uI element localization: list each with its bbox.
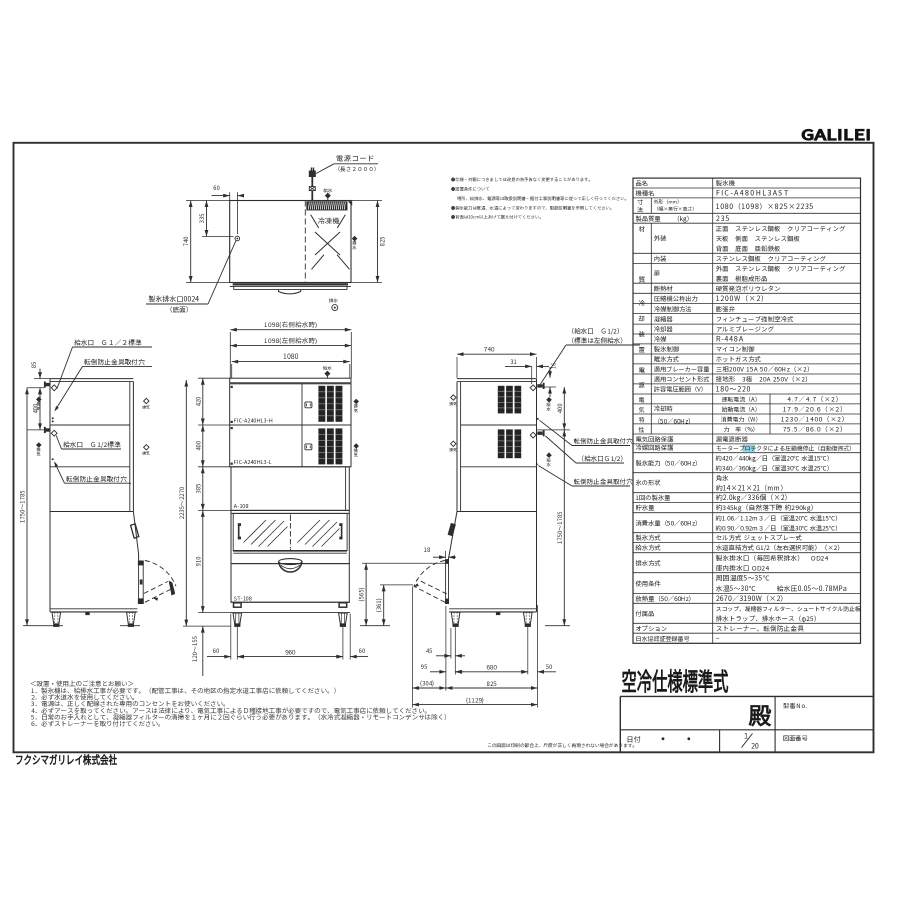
svg-text:力 率（%）: 力 率（%） — [724, 424, 759, 433]
svg-text:膨張弁: 膨張弁 — [715, 304, 736, 313]
svg-text:（給水口Ｇ1/2）: （給水口Ｇ1/2） — [578, 453, 627, 463]
svg-text:排水: 排水 — [328, 298, 338, 304]
svg-text:●製氷能力は室温、水温によって変わりますので、取扱説明書を参: ●製氷能力は室温、水温によって変わりますので、取扱説明書を参照してください。 — [451, 206, 614, 212]
svg-text:約14×21×21（mm）: 約14×21×21（mm） — [716, 483, 788, 493]
svg-text:ホットガス方式: ホットガス方式 — [716, 354, 761, 363]
svg-text:1230／1400（×2）: 1230／1400（×2） — [781, 414, 849, 423]
svg-text:電気回路保護: 電気回路保護 — [636, 434, 674, 443]
svg-text:（50／60Hz）: （50／60Hz） — [654, 417, 694, 426]
svg-text:製氷能力（50／60Hz）: 製氷能力（50／60Hz） — [636, 459, 702, 468]
svg-text:18: 18 — [424, 545, 431, 554]
svg-text:製氷機: 製氷機 — [716, 179, 736, 188]
svg-text:335: 335 — [197, 214, 206, 224]
svg-text:気: 気 — [354, 453, 358, 459]
svg-text:付属品: 付属品 — [636, 609, 655, 618]
svg-text:電: 電 — [639, 395, 645, 404]
svg-text:気: 気 — [639, 405, 646, 414]
svg-text:マイコン制御: マイコン制御 — [716, 345, 755, 354]
svg-text:●設置条件について: ●設置条件について — [451, 186, 490, 193]
svg-text:電: 電 — [639, 366, 646, 375]
svg-text:排水方式: 排水方式 — [636, 559, 661, 568]
svg-text:120～155: 120～155 — [190, 636, 199, 662]
svg-text:(565): (565) — [357, 587, 366, 601]
svg-text:約0.90／0.92m３／日（室温30℃ 水温25℃）: 約0.90／0.92m３／日（室温30℃ 水温25℃） — [716, 524, 842, 533]
svg-text:特: 特 — [639, 415, 645, 424]
svg-text:排気: 排気 — [448, 447, 457, 453]
svg-text:外面 ステンレス鋼板 クリアコーティング: 外面 ステンレス鋼板 クリアコーティング — [716, 264, 846, 273]
svg-text:17.9／20.6（×2）: 17.9／20.6（×2） — [783, 404, 847, 413]
svg-text:冷却器: 冷却器 — [654, 325, 674, 334]
svg-text:6．必ずストレーナーを取り付けてください。: 6．必ずストレーナーを取り付けてください。 — [31, 718, 165, 728]
svg-text:1098(右側給水時): 1098(右側給水時) — [264, 319, 318, 329]
svg-text:排水トラップ、排水ホース（φ25）: 排水トラップ、排水ホース（φ25） — [716, 614, 821, 623]
svg-text:1098(左側給水時): 1098(左側給水時) — [264, 335, 318, 345]
svg-text:（長さ２０００）: （長さ２０００） — [335, 165, 380, 173]
svg-text:冷媒回路保護: 冷媒回路保護 — [636, 443, 674, 452]
svg-text:−: − — [716, 633, 720, 643]
svg-text:（標準は左側給水）: （標準は左側給水） — [568, 335, 627, 345]
svg-text:水道直結方式 G1/2（左右選択可能）（×2）: 水道直結方式 G1/2（左右選択可能）（×2） — [716, 543, 844, 552]
svg-text:置: 置 — [639, 345, 646, 354]
svg-text:A-108: A-108 — [234, 503, 250, 510]
svg-text:周囲温度5～35℃: 周囲温度5～35℃ — [716, 573, 770, 583]
svg-text:1750～1785: 1750～1785 — [18, 490, 27, 523]
svg-text:外装: 外装 — [654, 234, 667, 243]
svg-text:消費電力（W）: 消費電力（W） — [721, 414, 762, 423]
svg-text:740: 740 — [181, 237, 190, 247]
svg-text:貯氷量: 貯氷量 — [636, 503, 656, 512]
svg-text:硬質発泡ポリウレタン: 硬質発泡ポリウレタン — [715, 284, 781, 293]
svg-text:FIC-A240HL3-L: FIC-A240HL3-L — [234, 459, 272, 466]
svg-text:(361): (361) — [374, 598, 383, 612]
svg-text:2670／3190W（×2）: 2670／3190W（×2） — [716, 594, 788, 604]
svg-text:庫内排水口 OD24: 庫内排水口 OD24 — [716, 563, 770, 573]
svg-text:オプション: オプション — [636, 624, 667, 633]
svg-text:水温5～30℃ 給水圧0.05～0.78MPa: 水温5～30℃ 給水圧0.05～0.78MPa — [716, 583, 847, 593]
svg-text:空冷仕様標準式: 空冷仕様標準式 — [622, 662, 729, 698]
svg-text:（給水口 Ｇ1/2）: （給水口 Ｇ1/2） — [568, 326, 624, 336]
svg-text:排気: 排気 — [448, 401, 457, 407]
svg-text:製氷方式: 製氷方式 — [636, 533, 661, 542]
svg-text:約345kg（自然落下時 約290kg）: 約345kg（自然落下時 約290kg） — [716, 502, 818, 512]
svg-text:60: 60 — [213, 183, 220, 192]
svg-text:この図面は印刷の都合上、尺度が正しく再現されない場合がありま: この図面は印刷の都合上、尺度が正しく再現されない場合があります。 — [487, 742, 637, 749]
svg-text:殿: 殿 — [749, 697, 772, 731]
svg-text:給水口 Ｇ１／２標準: 給水口 Ｇ１／２標準 — [74, 337, 142, 347]
svg-text:ST-108: ST-108 — [234, 595, 253, 602]
svg-text:1回の製氷量: 1回の製氷量 — [636, 493, 672, 502]
svg-text:235: 235 — [716, 214, 731, 224]
svg-text:気: 気 — [354, 408, 358, 414]
svg-text:400: 400 — [193, 441, 202, 451]
svg-text:適用ブレーカー容量: 適用ブレーカー容量 — [654, 365, 710, 374]
svg-text:20: 20 — [751, 741, 759, 751]
svg-text:910: 910 — [193, 557, 202, 567]
svg-text:960: 960 — [285, 647, 295, 656]
svg-text:冷凍機: 冷凍機 — [318, 216, 340, 226]
svg-text:1200W（×2）: 1200W（×2） — [716, 293, 769, 303]
svg-text:400: 400 — [555, 403, 564, 413]
svg-text:冷媒制御方法: 冷媒制御方法 — [654, 304, 692, 313]
svg-text:始動電流（A）: 始動電流（A） — [722, 404, 761, 413]
svg-text:水: 水 — [351, 245, 357, 251]
svg-text:50: 50 — [545, 662, 553, 671]
svg-text:ステンレス鋼板 クリアコーティング: ステンレス鋼板 クリアコーティング — [716, 254, 827, 263]
svg-text:約2.0kg／336個（×2）: 約2.0kg／336個（×2） — [716, 492, 792, 502]
svg-text:許容電圧範囲（V）: 許容電圧範囲（V） — [654, 385, 707, 394]
svg-text:825: 825 — [487, 679, 497, 688]
svg-text:●背面は10cm以上あけて据え付けてください。: ●背面は10cm以上あけて据え付けてください。 — [451, 215, 544, 221]
svg-text:正面 ステンレス鋼板 クリアコーティング: 正面 ステンレス鋼板 クリアコーティング — [716, 224, 846, 233]
svg-text:1080（1098）×825×2235: 1080（1098）×825×2235 — [716, 201, 814, 211]
svg-text:給水方式: 給水方式 — [636, 543, 661, 552]
svg-text:材: 材 — [639, 224, 646, 234]
svg-text:使用条件: 使用条件 — [636, 579, 662, 588]
svg-text:（幅×奥行×高さ）: （幅×奥行×高さ） — [654, 206, 697, 213]
svg-text:フクシマガリレイ株式会社: フクシマガリレイ株式会社 — [15, 752, 117, 768]
svg-text:4.7／4.7（×2）: 4.7／4.7（×2） — [787, 394, 843, 403]
svg-text:氷の形状: 氷の形状 — [636, 478, 661, 487]
svg-text:FIC-A480HL3AST: FIC-A480HL3AST — [716, 189, 790, 199]
svg-text:内装: 内装 — [654, 254, 667, 263]
svg-text:31: 31 — [510, 357, 517, 366]
svg-text:断熱材: 断熱材 — [654, 284, 674, 293]
svg-text:漏電遮断器: 漏電遮断器 — [716, 434, 749, 443]
svg-text:モータープロテクタによる圧縮機停止（自動復帰式）: モータープロテクタによる圧縮機停止（自動復帰式） — [716, 443, 855, 452]
svg-text:外形（mm）: 外形（mm） — [653, 198, 682, 205]
svg-text:420: 420 — [193, 397, 202, 407]
svg-text:製品質量 （kg）: 製品質量 （kg） — [636, 214, 693, 223]
svg-text:冷却時: 冷却時 — [654, 404, 674, 413]
svg-text:45: 45 — [426, 646, 433, 655]
svg-text:質: 質 — [639, 274, 646, 284]
svg-text:機種名: 機種名 — [636, 189, 655, 198]
svg-text:背面 底面 亜鉛鉄板: 背面 底面 亜鉛鉄板 — [716, 244, 781, 253]
svg-text:日水協認証登録番号: 日水協認証登録番号 — [636, 634, 690, 643]
svg-text:転倒防止金具取付穴: 転倒防止金具取付穴 — [66, 473, 127, 483]
svg-text:三相200V 15A 50／60Hz（×2）: 三相200V 15A 50／60Hz（×2） — [716, 365, 814, 374]
svg-text:装: 装 — [639, 330, 645, 339]
svg-text:冷媒: 冷媒 — [654, 334, 667, 343]
svg-text:400: 400 — [31, 404, 40, 414]
svg-text:性: 性 — [639, 425, 646, 434]
svg-text:FIC-A240HL3-H: FIC-A240HL3-H — [234, 417, 273, 424]
svg-text:2235～2270: 2235～2270 — [177, 487, 186, 520]
svg-text:約1.06／1.12m３／日（室温20℃ 水温15℃）: 約1.06／1.12m３／日（室温20℃ 水温15℃） — [716, 514, 842, 523]
svg-text:品名: 品名 — [636, 179, 649, 188]
svg-text:825: 825 — [378, 237, 387, 247]
svg-text:排気: 排気 — [141, 404, 150, 410]
svg-text:水: 水 — [546, 462, 552, 468]
svg-text:排気: 排気 — [141, 451, 150, 457]
svg-text:60: 60 — [213, 646, 220, 655]
svg-text:約420／440kg／日（室温20℃ 水温15℃）: 約420／440kg／日（室温20℃ 水温15℃） — [716, 454, 833, 463]
svg-text:740: 740 — [484, 345, 495, 354]
svg-text:場所、給排水、電源等は取扱説明書・据付工事説明書等に従って正: 場所、給排水、電源等は取扱説明書・据付工事説明書等に従って正しく行ってください。 — [456, 195, 629, 202]
svg-text:給水口 Ｇ1/2標準: 給水口 Ｇ1/2標準 — [63, 439, 121, 449]
svg-text:●仕様・外観につきましては改良の為予告なく変更することがあり: ●仕様・外観につきましては改良の為予告なく変更することがあります。 — [451, 176, 593, 183]
svg-text:裏面 樹脂成形品: 裏面 樹脂成形品 — [716, 274, 768, 283]
svg-text:(304): (304) — [420, 678, 434, 687]
svg-text:圧縮機公称出力: 圧縮機公称出力 — [654, 294, 698, 303]
svg-text:スコップ、凝縮器フィルター、シュートサイクル防止板: スコップ、凝縮器フィルター、シュートサイクル防止板 — [716, 604, 861, 613]
svg-text:放熱量（50／60Hz）: 放熱量（50／60Hz） — [635, 594, 695, 603]
svg-text:60: 60 — [359, 646, 366, 655]
svg-text:(1129): (1129) — [466, 695, 484, 704]
svg-text:天板 側面 ステンレス鋼板: 天板 側面 ステンレス鋼板 — [716, 234, 801, 243]
svg-text:製氷排水口（毎回希釈排水） OD24: 製氷排水口（毎回希釈排水） OD24 — [716, 553, 829, 563]
svg-text:385: 385 — [193, 484, 202, 494]
svg-text:680: 680 — [486, 663, 496, 672]
svg-text:フィンチューブ強制空冷式: フィンチューブ強制空冷式 — [716, 315, 794, 324]
svg-text:電源コード: 電源コード — [336, 154, 375, 164]
svg-text:源: 源 — [639, 381, 646, 390]
svg-text:約340／360kg／日（室温30℃ 水温25℃）: 約340／360kg／日（室温30℃ 水温25℃） — [716, 464, 833, 473]
svg-text:図面番号: 図面番号 — [783, 734, 808, 743]
svg-text:却: 却 — [638, 314, 645, 323]
svg-text:凝縮器: 凝縮器 — [654, 315, 674, 324]
svg-text:水: 水 — [546, 407, 552, 413]
svg-text:転倒防止金具取付穴: 転倒防止金具取付穴 — [574, 437, 634, 446]
svg-text:法: 法 — [636, 205, 643, 214]
svg-text:運転電流（A）: 運転電流（A） — [722, 394, 761, 403]
svg-text:製氷制御: 製氷制御 — [654, 345, 680, 354]
svg-text:75.5／86.0（×2）: 75.5／86.0（×2） — [783, 424, 847, 433]
svg-text:接地形 3極 20A 250V（×2）: 接地形 3極 20A 250V（×2） — [716, 374, 812, 383]
svg-text:給水: 給水 — [323, 364, 332, 371]
svg-text:ストレーナー、転倒防止金具: ストレーナー、転倒防止金具 — [716, 623, 805, 633]
svg-text:1080: 1080 — [283, 351, 298, 361]
svg-text:転倒防止金具取付穴: 転倒防止金具取付穴 — [574, 477, 634, 486]
svg-text:95: 95 — [421, 662, 428, 671]
svg-text:85: 85 — [29, 362, 38, 368]
svg-text:R-448A: R-448A — [716, 334, 744, 344]
svg-text:転倒防止金具取付穴: 転倒防止金具取付穴 — [84, 357, 145, 367]
svg-text:消費水量（50／60Hz）: 消費水量（50／60Hz） — [636, 519, 702, 528]
svg-text:セル方式 ジェットスプレー式: セル方式 ジェットスプレー式 — [716, 533, 802, 542]
svg-text:冷: 冷 — [639, 299, 646, 308]
svg-text:角氷: 角氷 — [716, 474, 729, 483]
svg-text:1750～1785: 1750～1785 — [555, 511, 564, 544]
svg-text:扉: 扉 — [654, 269, 660, 278]
svg-text:離氷方式: 離氷方式 — [654, 354, 679, 363]
svg-text:180～220: 180～220 — [716, 384, 751, 394]
svg-text:アルミブレージング: アルミブレージング — [716, 325, 775, 334]
svg-text:型番No.: 型番No. — [783, 701, 808, 710]
svg-text:適用コンセント形式: 適用コンセント形式 — [654, 374, 710, 383]
svg-text:（底面）: （底面） — [166, 304, 192, 314]
svg-text:気: 気 — [36, 452, 40, 458]
